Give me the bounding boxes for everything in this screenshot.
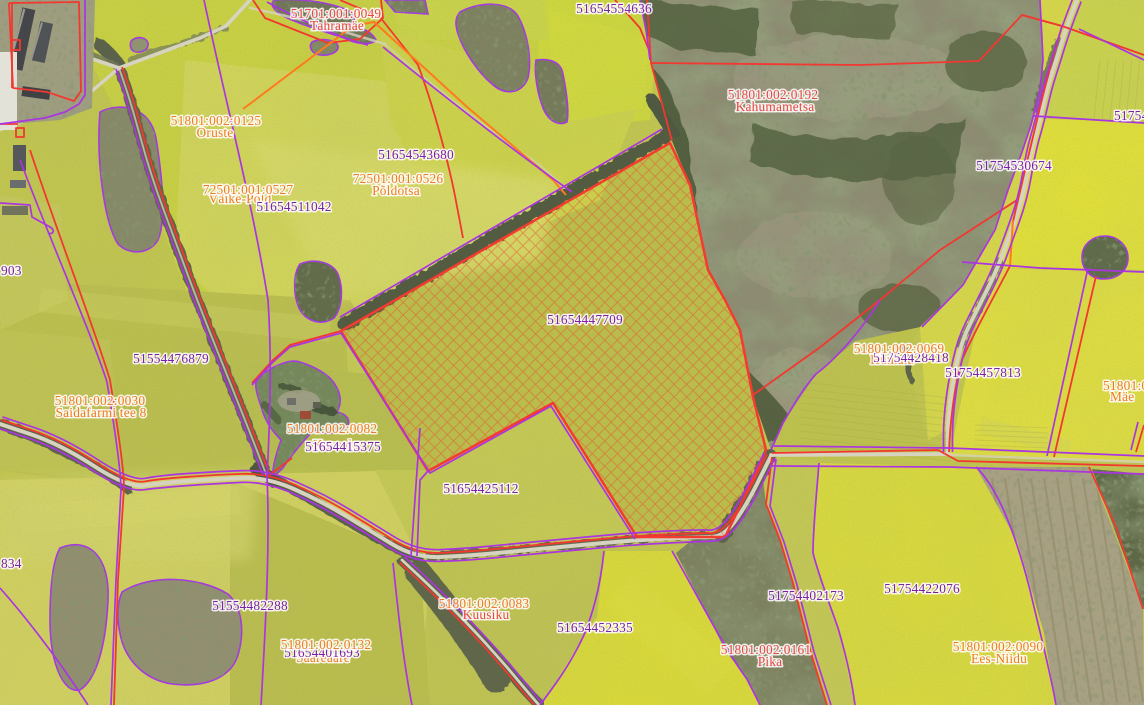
svg-text:51654447709: 51654447709 xyxy=(547,312,623,327)
svg-text:Mäe: Mäe xyxy=(1110,389,1134,404)
svg-text:51801:002:0083: 51801:002:0083 xyxy=(439,596,530,611)
svg-text:51654415375: 51654415375 xyxy=(305,439,381,454)
svg-text:51654452335: 51654452335 xyxy=(557,620,633,635)
svg-text:51554476879: 51554476879 xyxy=(133,351,209,366)
svg-text:51654511042: 51654511042 xyxy=(256,199,331,214)
svg-text:51754457813: 51754457813 xyxy=(945,365,1021,380)
svg-text:51654543680: 51654543680 xyxy=(378,147,454,162)
svg-text:51801:002:0082: 51801:002:0082 xyxy=(287,421,378,436)
svg-text:Kahumametsa: Kahumametsa xyxy=(736,99,815,114)
svg-text:72501:001:0527: 72501:001:0527 xyxy=(203,182,294,197)
svg-text:Saidafarmi tee 8: Saidafarmi tee 8 xyxy=(56,405,147,420)
svg-text:Pika: Pika xyxy=(758,654,783,669)
svg-text:903: 903 xyxy=(1,263,22,278)
svg-text:51754422076: 51754422076 xyxy=(884,581,960,596)
svg-text:51654425112: 51654425112 xyxy=(443,481,518,496)
svg-text:51801:002:0069: 51801:002:0069 xyxy=(854,341,945,356)
svg-text:Põldotsa: Põldotsa xyxy=(372,183,420,198)
svg-text:Oruste: Oruste xyxy=(197,125,234,140)
svg-text:Ees-Niidu: Ees-Niidu xyxy=(971,651,1027,666)
svg-text:834: 834 xyxy=(1,556,22,571)
svg-text:Tahramäe: Tahramäe xyxy=(310,18,364,33)
svg-text:51654554636: 51654554636 xyxy=(576,1,652,16)
svg-text:51554482288: 51554482288 xyxy=(212,598,288,613)
svg-text:5175453: 5175453 xyxy=(1114,108,1144,123)
svg-text:51801:002:0132: 51801:002:0132 xyxy=(281,637,372,652)
svg-text:51754530674: 51754530674 xyxy=(976,158,1052,173)
svg-text:51754402173: 51754402173 xyxy=(768,588,844,603)
